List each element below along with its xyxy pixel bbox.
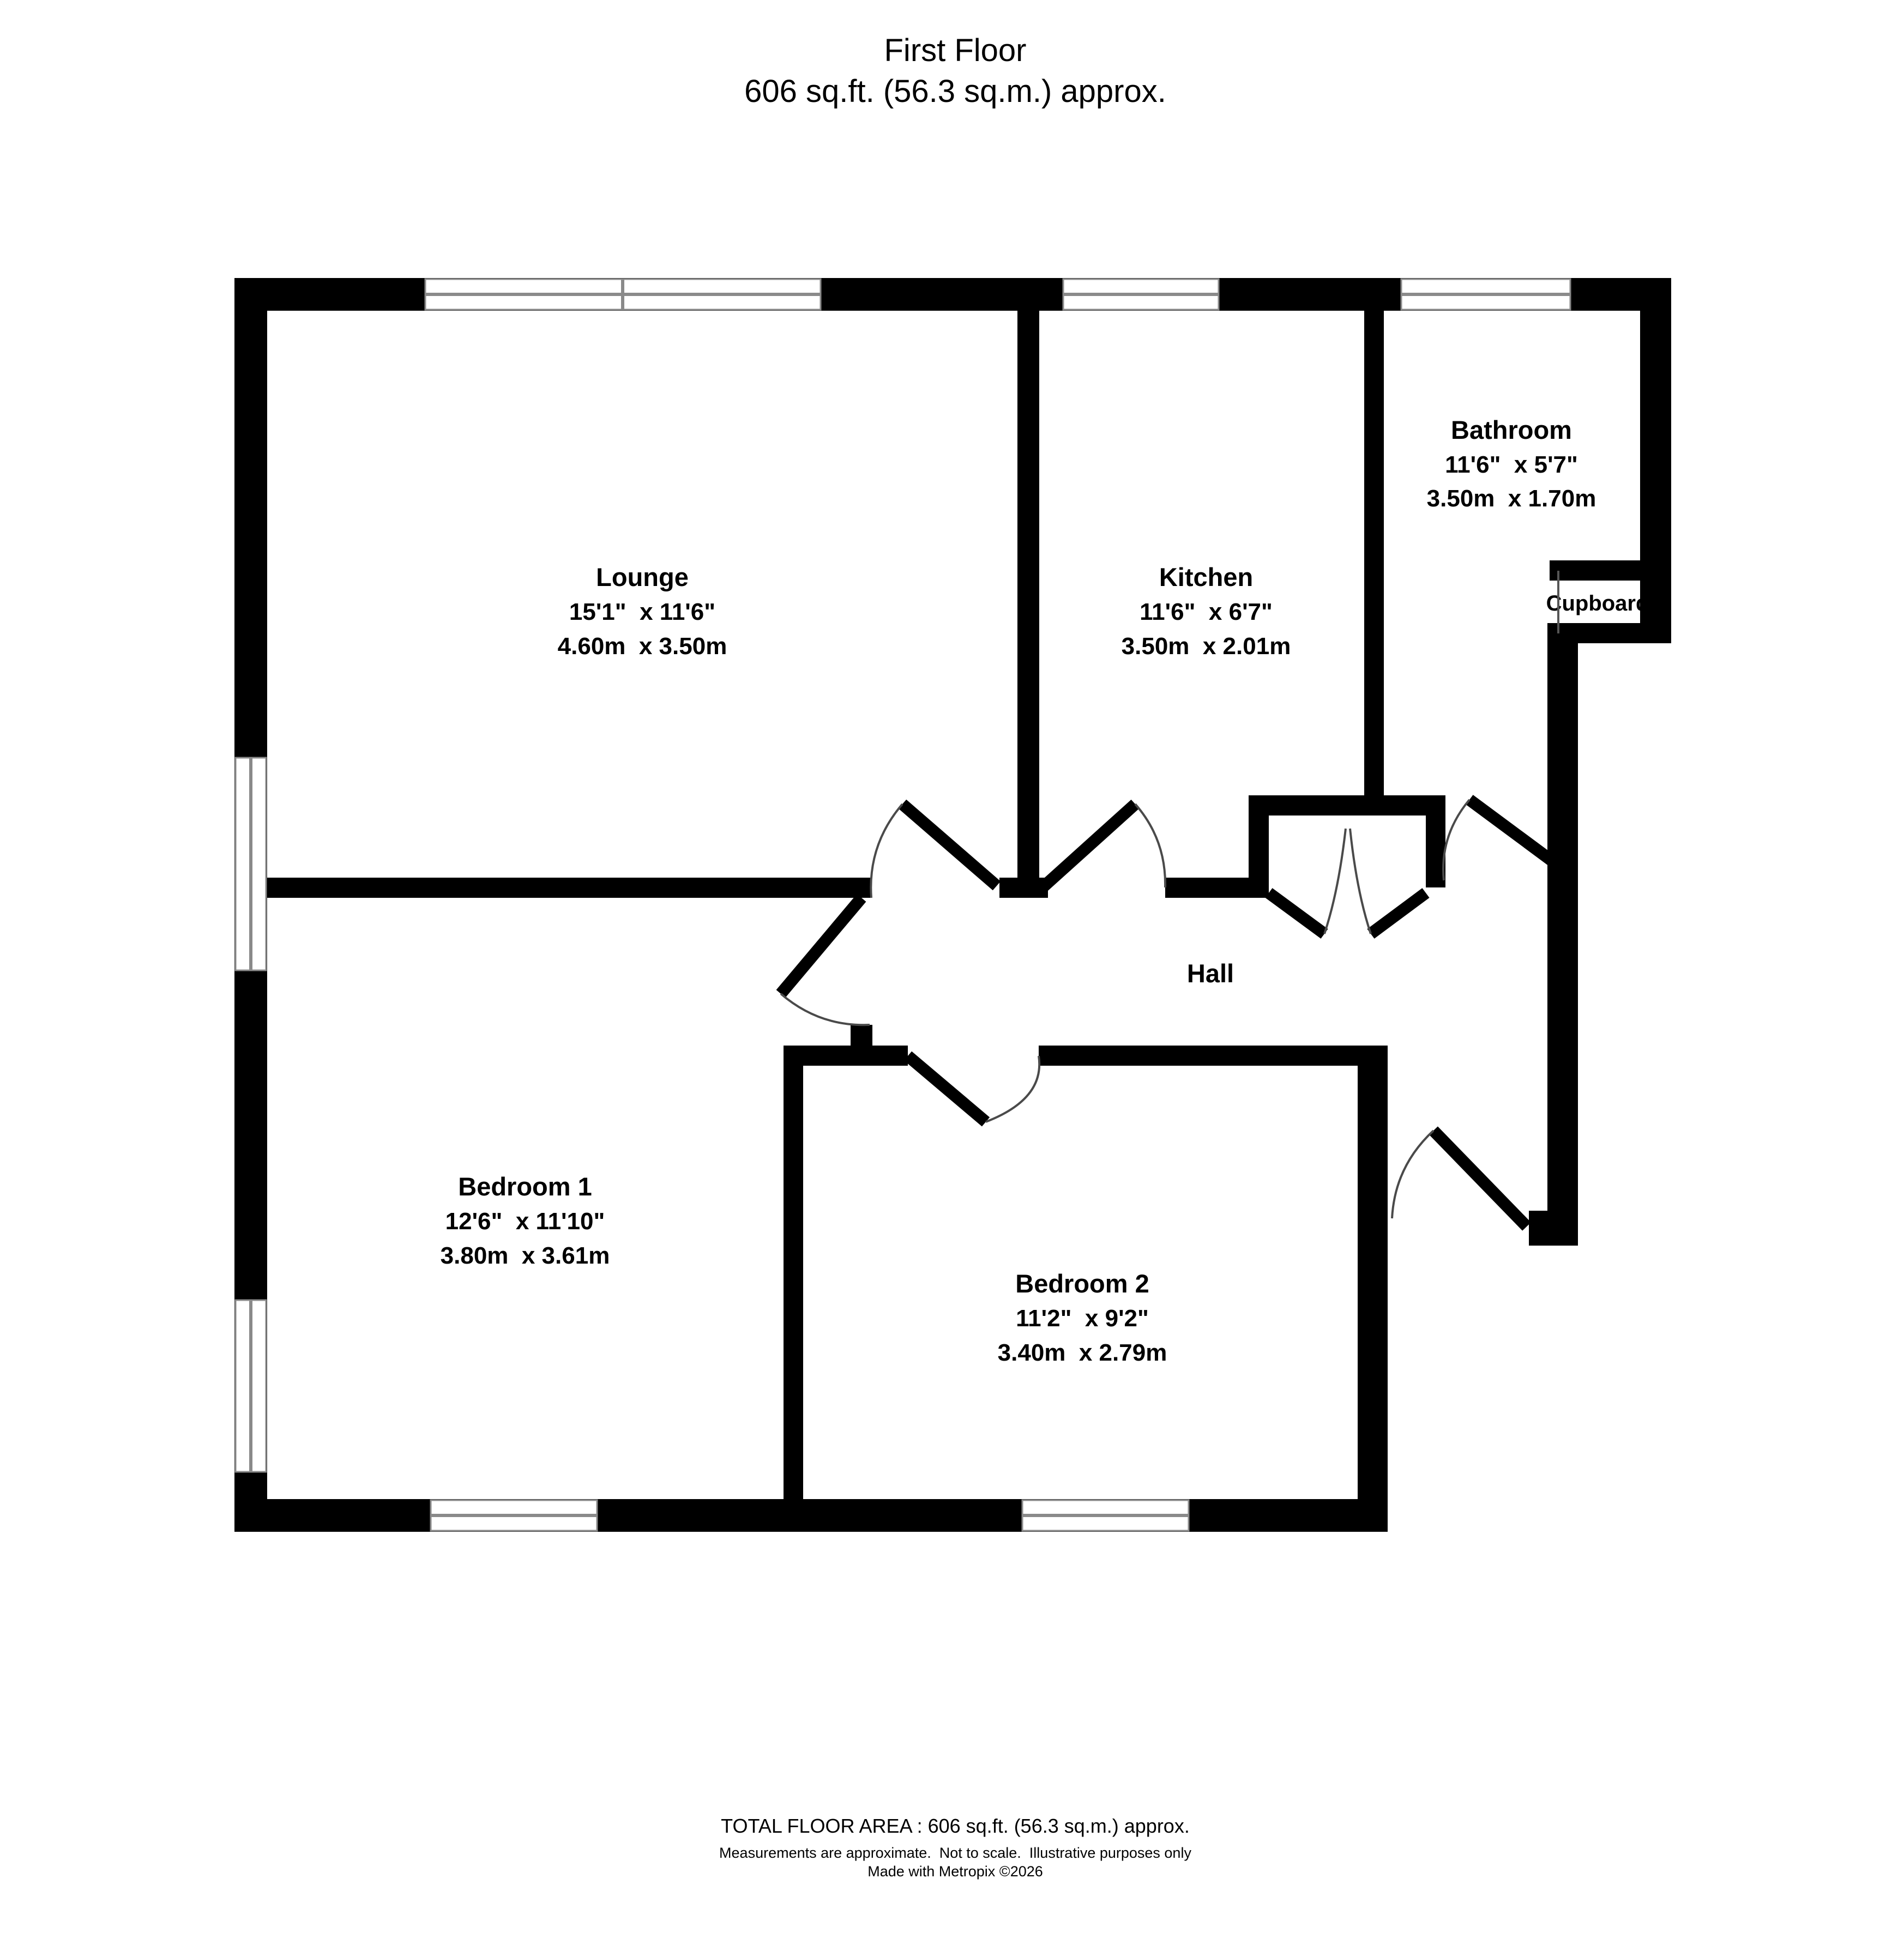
footer-total-area: TOTAL FLOOR AREA : 606 sq.ft. (56.3 sq.m… [721,1815,1190,1837]
room-label-lounge: Lounge 15'1" x 11'6" 4.60m x 3.50m [558,563,727,660]
bathroom-door-icon [1443,800,1562,880]
cupboard-label: Cupboard [1546,591,1649,615]
footer-disclaimer: Measurements are approximate. Not to sca… [719,1845,1191,1861]
doors [781,571,1562,1227]
wall-bedroom-divider [784,1046,803,1532]
wall-exterior-right-upper [1640,278,1671,643]
lounge-door-icon [871,804,997,898]
floorplan-canvas: Cupboard [0,0,1904,1933]
hall-closet-doors-icon [1269,829,1426,934]
room-label-kitchen: Kitchen 11'6" x 6'7" 3.50m x 2.01m [1122,563,1291,660]
lounge-metric: 4.60m x 3.50m [558,633,727,660]
footer-credit: Made with Metropix ©2026 [867,1863,1043,1880]
window-bedroom1-bottom [431,1500,597,1531]
title-line2: 606 sq.ft. (56.3 sq.m.) approx. [744,74,1166,109]
room-label-cupboard: Cupboard [1546,591,1649,615]
wall-exterior-right-lower [1547,623,1578,1246]
title-line1: First Floor [884,33,1027,68]
bedroom1-door-icon [781,898,870,1025]
bedroom2-door-icon [908,1056,1039,1122]
window-kitchen-top [1063,279,1219,310]
window-lounge-top [425,279,821,310]
bedroom1-name: Bedroom 1 [458,1172,592,1201]
kitchen-name: Kitchen [1159,563,1253,591]
floorplan-page: Cupboard [0,0,1904,1933]
bathroom-imperial: 11'6" x 5'7" [1445,451,1578,478]
bathroom-metric: 3.50m x 1.70m [1427,485,1596,512]
room-label-bedroom1: Bedroom 1 12'6" x 11'10" 3.80m x 3.61m [441,1172,610,1269]
bedroom2-metric: 3.40m x 2.79m [998,1339,1167,1366]
bedroom1-metric: 3.80m x 3.61m [441,1242,610,1269]
wall-lounge-bottom [267,878,871,898]
wall-entry-corner-block [1529,1211,1578,1246]
window-lounge-left [236,758,266,970]
wall-closet-top [1249,795,1445,816]
kitchen-imperial: 11'6" x 6'7" [1140,599,1273,625]
plan-footer: TOTAL FLOOR AREA : 606 sq.ft. (56.3 sq.m… [719,1815,1191,1880]
wall-exterior-bottom [234,1499,1388,1532]
bedroom1-imperial: 12'6" x 11'10" [445,1208,605,1235]
room-label-hall: Hall [1187,959,1234,988]
bedroom2-imperial: 11'2" x 9'2" [1016,1305,1149,1332]
wall-bedroom2-right [1358,1046,1388,1532]
window-bedroom2-bottom [1022,1500,1189,1531]
wall-bed1-door-stub [851,1025,872,1046]
bedroom2-name: Bedroom 2 [1015,1269,1149,1298]
window-bathroom-top [1401,279,1570,310]
wall-bathroom-bottom [1550,560,1640,581]
wall-kitchen-bathroom-divider [1364,311,1384,795]
kitchen-door-icon [1041,804,1165,889]
wall-closet-left [1249,795,1269,898]
bathroom-name: Bathroom [1451,415,1572,444]
kitchen-metric: 3.50m x 2.01m [1122,633,1291,660]
wall-hall-bottom-right [1039,1046,1388,1066]
wall-lounge-kitchen-divider [1017,311,1039,878]
plan-title: First Floor 606 sq.ft. (56.3 sq.m.) appr… [744,33,1166,109]
window-bedroom1-left [236,1300,266,1472]
room-label-bathroom: Bathroom 11'6" x 5'7" 3.50m x 1.70m [1427,415,1596,512]
lounge-imperial: 15'1" x 11'6" [569,599,715,625]
room-label-bedroom2: Bedroom 2 11'2" x 9'2" 3.40m x 2.79m [998,1269,1167,1366]
lounge-name: Lounge [596,563,689,591]
entry-door-icon [1392,1131,1527,1227]
hall-name: Hall [1187,959,1234,988]
